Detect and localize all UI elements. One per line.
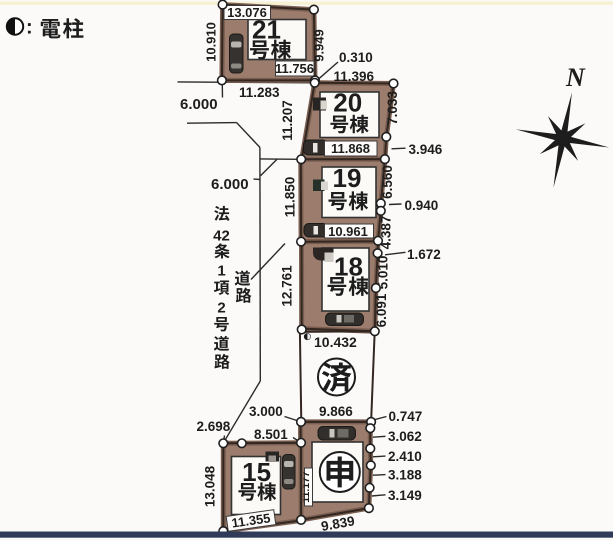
svg-text:0.310: 0.310	[339, 50, 373, 65]
svg-text:20: 20	[333, 88, 362, 118]
svg-text:21: 21	[252, 15, 281, 45]
svg-text:3.000: 3.000	[249, 404, 283, 419]
svg-text:12.761: 12.761	[280, 265, 295, 307]
svg-text:11.283: 11.283	[239, 85, 280, 100]
svg-text:9.866: 9.866	[319, 404, 353, 419]
svg-text:11.868: 11.868	[331, 141, 370, 156]
svg-text:11.207: 11.207	[280, 100, 295, 141]
svg-text:13.048: 13.048	[203, 465, 218, 507]
svg-text:11.396: 11.396	[334, 69, 375, 84]
svg-text:18: 18	[334, 252, 363, 282]
svg-text:19: 19	[333, 163, 362, 193]
svg-text:11.850: 11.850	[283, 177, 298, 218]
svg-text:1: 1	[217, 263, 225, 280]
svg-text:3.062: 3.062	[388, 429, 422, 444]
svg-text:10.961: 10.961	[328, 224, 368, 239]
svg-text:3.946: 3.946	[409, 142, 443, 157]
svg-text::: :	[26, 17, 33, 39]
svg-text:6.091: 6.091	[374, 293, 389, 327]
svg-text:42: 42	[213, 228, 230, 245]
svg-text:3.188: 3.188	[388, 468, 422, 483]
svg-text:11.756: 11.756	[275, 61, 314, 76]
svg-text:N: N	[565, 63, 586, 92]
svg-text:2.410: 2.410	[388, 449, 422, 464]
svg-text:0.747: 0.747	[389, 409, 423, 424]
svg-text:0.940: 0.940	[405, 198, 439, 213]
svg-text:6.560: 6.560	[380, 165, 395, 199]
svg-text:10.910: 10.910	[204, 22, 219, 62]
svg-text:15: 15	[242, 457, 271, 487]
svg-text:9.949: 9.949	[312, 29, 327, 62]
svg-text:7.033: 7.033	[385, 91, 400, 125]
svg-text:8.501: 8.501	[254, 427, 288, 442]
svg-text:2.698: 2.698	[197, 419, 231, 434]
svg-text:1.672: 1.672	[407, 247, 441, 262]
svg-text:6.000: 6.000	[180, 96, 218, 113]
svg-text:3.149: 3.149	[388, 488, 422, 503]
svg-text:6.000: 6.000	[211, 176, 249, 193]
svg-text:2: 2	[217, 300, 225, 317]
svg-text:10.432: 10.432	[314, 334, 357, 350]
